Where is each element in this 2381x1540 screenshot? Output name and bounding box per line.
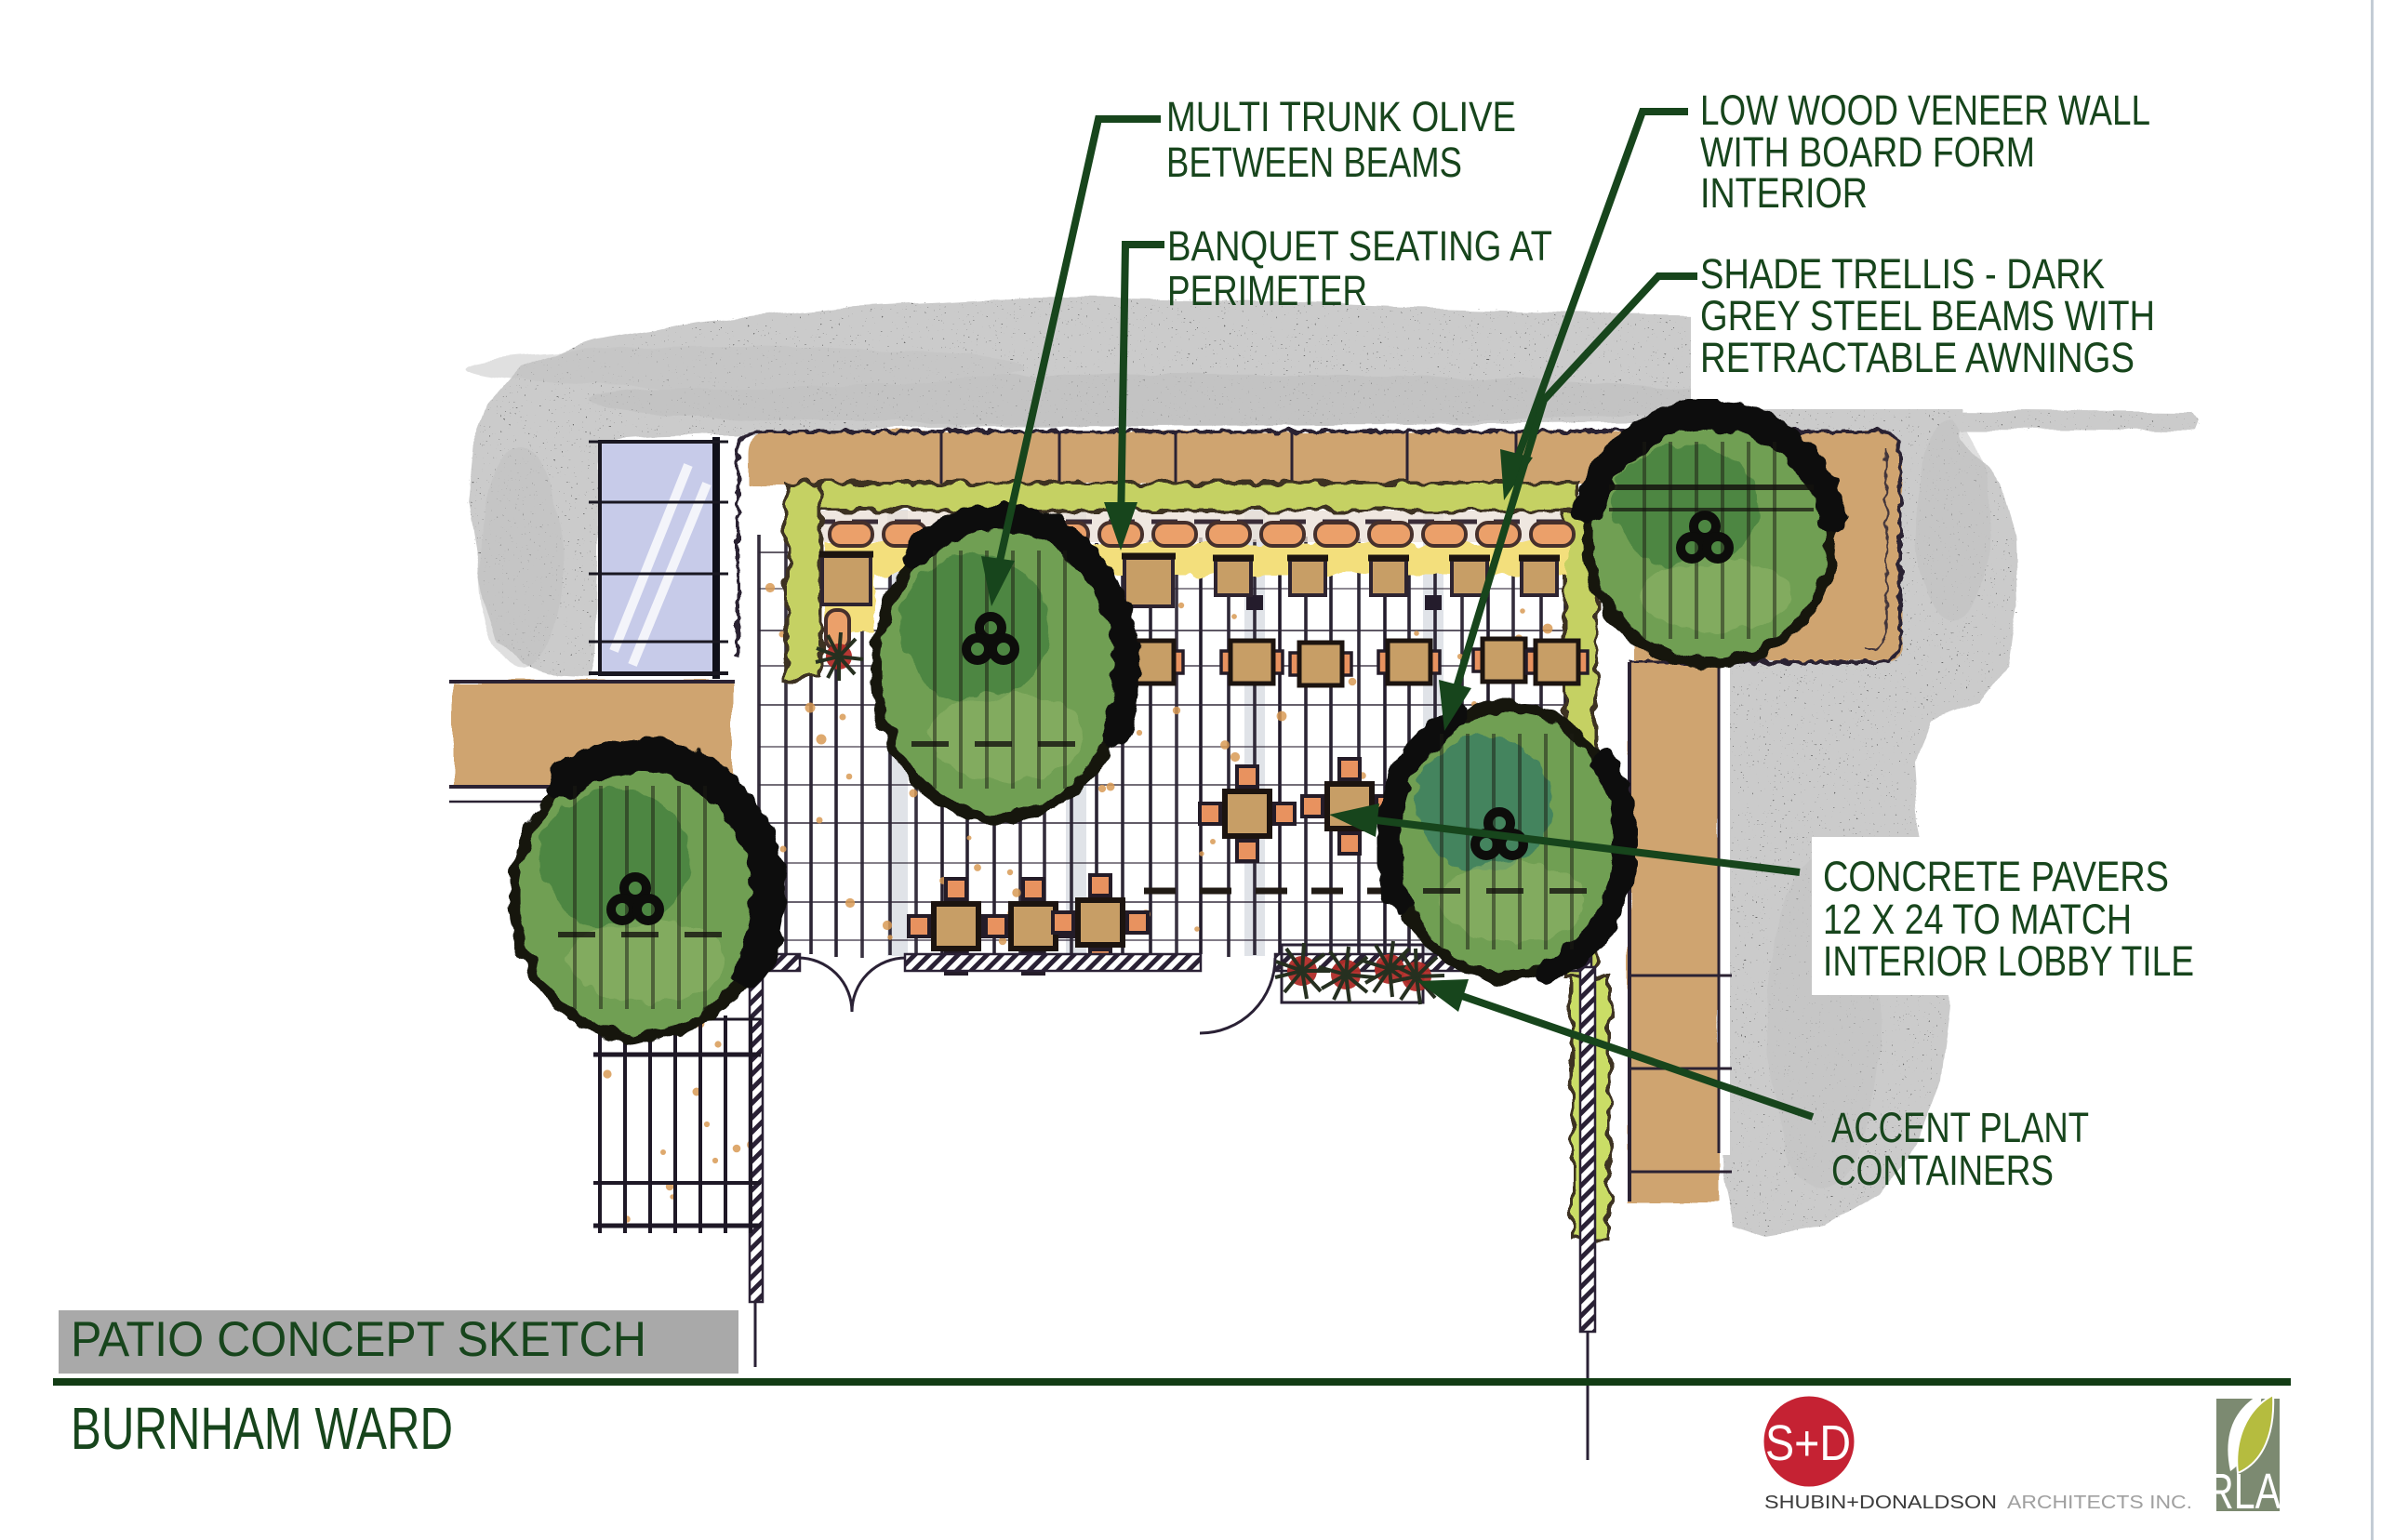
svg-text:S+D: S+D bbox=[1765, 1415, 1851, 1471]
svg-text:12 X 24 TO MATCH: 12 X 24 TO MATCH bbox=[1823, 896, 2132, 943]
svg-text:PATIO CONCEPT SKETCH: PATIO CONCEPT SKETCH bbox=[71, 1312, 646, 1367]
svg-text:CONCRETE PAVERS: CONCRETE PAVERS bbox=[1823, 853, 2169, 900]
svg-text:BETWEEN BEAMS: BETWEEN BEAMS bbox=[1166, 139, 1462, 186]
svg-text:SHUBIN+DONALDSON: SHUBIN+DONALDSON bbox=[1764, 1493, 1997, 1513]
svg-text:INTERIOR: INTERIOR bbox=[1700, 169, 1868, 217]
svg-text:ACCENT PLANT: ACCENT PLANT bbox=[1831, 1104, 2089, 1151]
svg-text:BANQUET SEATING AT: BANQUET SEATING AT bbox=[1167, 222, 1552, 270]
svg-text:MULTI TRUNK OLIVE: MULTI TRUNK OLIVE bbox=[1166, 93, 1516, 140]
svg-text:GREY STEEL BEAMS WITH: GREY STEEL BEAMS WITH bbox=[1700, 292, 2155, 339]
svg-text:RETRACTABLE AWNINGS: RETRACTABLE AWNINGS bbox=[1700, 334, 2135, 381]
svg-text:SHADE TRELLIS - DARK: SHADE TRELLIS - DARK bbox=[1700, 250, 2105, 298]
svg-text:PERIMETER: PERIMETER bbox=[1167, 267, 1367, 314]
svg-text:INTERIOR LOBBY TILE: INTERIOR LOBBY TILE bbox=[1823, 937, 2194, 985]
svg-text:CONTAINERS: CONTAINERS bbox=[1831, 1147, 2054, 1194]
svg-text:ARCHITECTS INC.: ARCHITECTS INC. bbox=[2007, 1493, 2192, 1513]
svg-text:RLA: RLA bbox=[2206, 1464, 2281, 1520]
svg-text:BURNHAM WARD: BURNHAM WARD bbox=[71, 1395, 453, 1462]
svg-text:LOW WOOD VENEER WALL: LOW WOOD VENEER WALL bbox=[1700, 86, 2150, 134]
